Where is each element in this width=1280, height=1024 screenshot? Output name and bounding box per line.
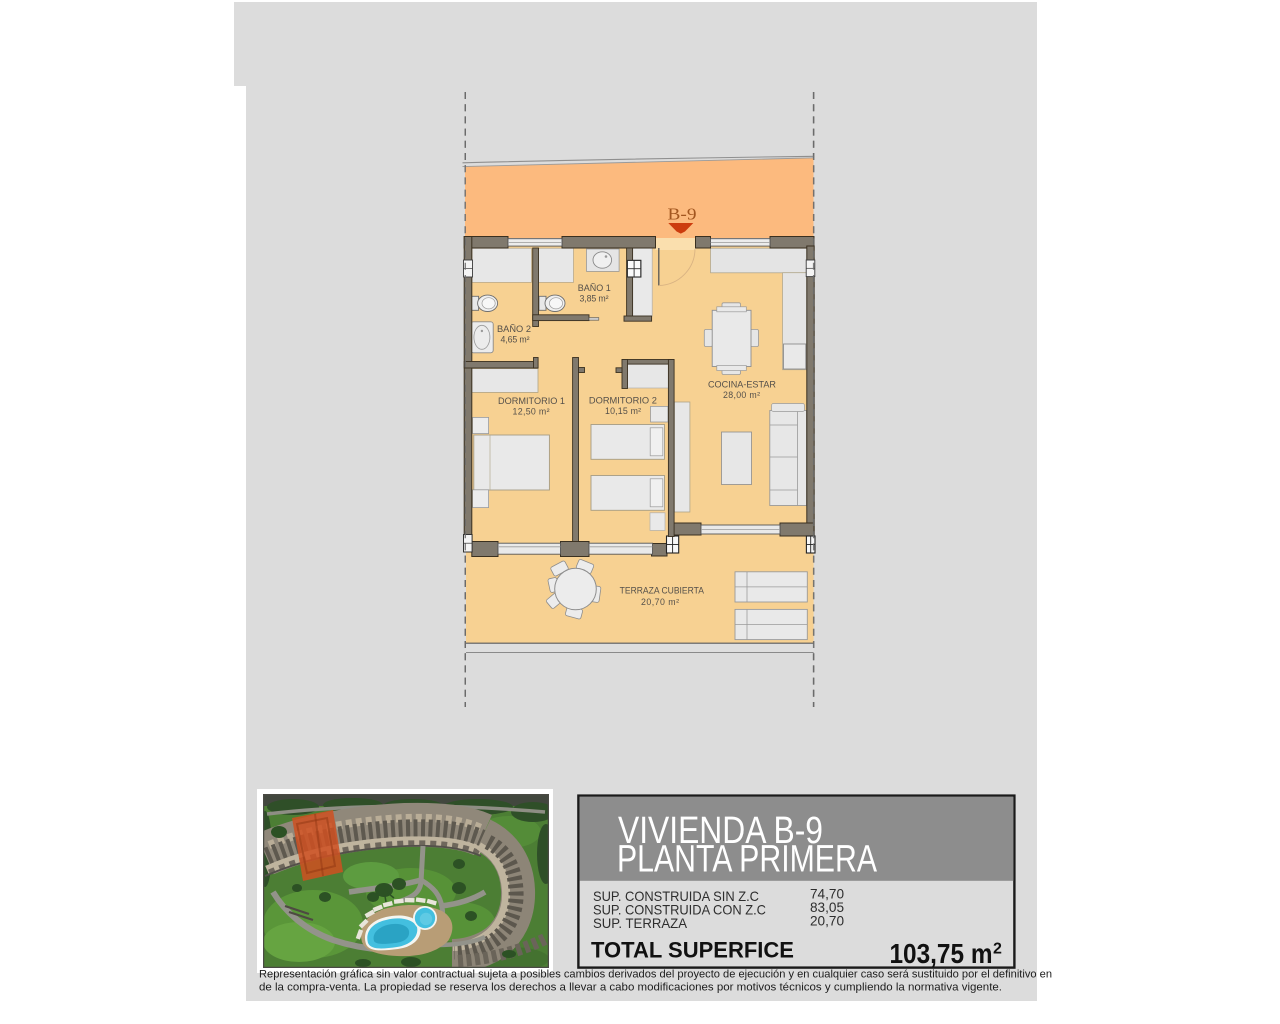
svg-text:DORMITORIO 2: DORMITORIO 2 xyxy=(589,395,657,405)
svg-text:3,85 m²: 3,85 m² xyxy=(580,294,609,304)
svg-text:BAÑO 1: BAÑO 1 xyxy=(578,283,611,293)
svg-text:de la compra-venta. La propied: de la compra-venta. La propiedad se rese… xyxy=(259,982,1002,994)
svg-text:20,70 m²: 20,70 m² xyxy=(641,597,679,607)
svg-text:DORMITORIO 1: DORMITORIO 1 xyxy=(498,396,565,406)
svg-text:BAÑO 2: BAÑO 2 xyxy=(497,324,531,334)
svg-text:Representación gráfica sin val: Representación gráfica sin valor contrac… xyxy=(259,969,1052,981)
svg-text:28,00 m²: 28,00 m² xyxy=(723,390,760,400)
svg-text:B-9: B-9 xyxy=(668,205,697,224)
svg-text:2: 2 xyxy=(993,941,1002,958)
svg-text:10,15 m²: 10,15 m² xyxy=(605,406,641,416)
svg-text:20,70: 20,70 xyxy=(810,914,844,929)
svg-text:COCINA-ESTAR: COCINA-ESTAR xyxy=(708,379,776,389)
svg-text:SUP. TERRAZA: SUP. TERRAZA xyxy=(593,916,688,931)
svg-text:PLANTA PRIMERA: PLANTA PRIMERA xyxy=(617,839,878,881)
svg-text:12,50 m²: 12,50 m² xyxy=(513,407,550,417)
svg-text:TERRAZA CUBIERTA: TERRAZA CUBIERTA xyxy=(620,585,704,595)
svg-text:4,65 m²: 4,65 m² xyxy=(501,335,530,345)
